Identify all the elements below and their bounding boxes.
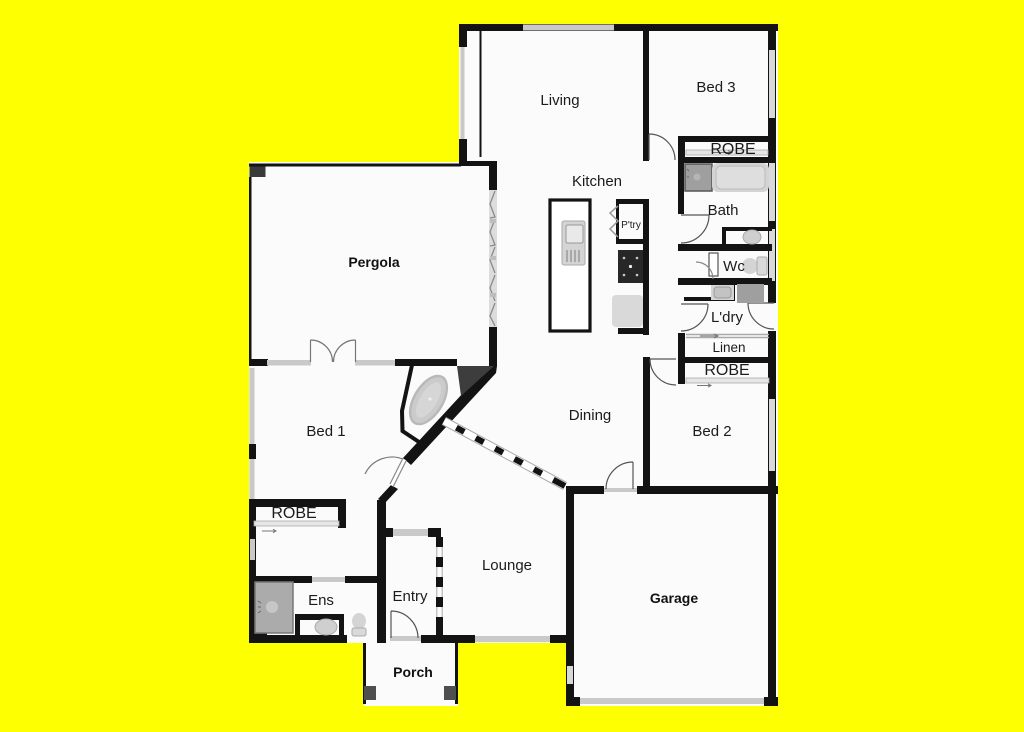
svg-text:Entry: Entry: [392, 588, 428, 605]
svg-text:ROBE: ROBE: [271, 505, 316, 522]
svg-text:Bed 3: Bed 3: [696, 79, 735, 96]
svg-text:Bed 2: Bed 2: [692, 423, 731, 440]
svg-text:Pergola: Pergola: [348, 254, 400, 270]
svg-text:Bed 1: Bed 1: [306, 423, 345, 440]
svg-text:L'dry: L'dry: [711, 309, 744, 326]
svg-text:ROBE: ROBE: [704, 362, 749, 379]
svg-text:Wc: Wc: [723, 258, 745, 275]
svg-text:Lounge: Lounge: [482, 557, 532, 574]
svg-text:ROBE: ROBE: [710, 141, 755, 158]
svg-text:Dining: Dining: [569, 407, 612, 424]
svg-text:Garage: Garage: [650, 590, 698, 606]
svg-text:Kitchen: Kitchen: [572, 173, 622, 190]
svg-text:Porch: Porch: [393, 664, 433, 680]
svg-text:Ens: Ens: [308, 592, 334, 609]
svg-text:P'try: P'try: [621, 220, 641, 231]
svg-text:Living: Living: [540, 92, 579, 109]
svg-text:Bath: Bath: [708, 202, 739, 219]
svg-text:Linen: Linen: [712, 340, 745, 355]
